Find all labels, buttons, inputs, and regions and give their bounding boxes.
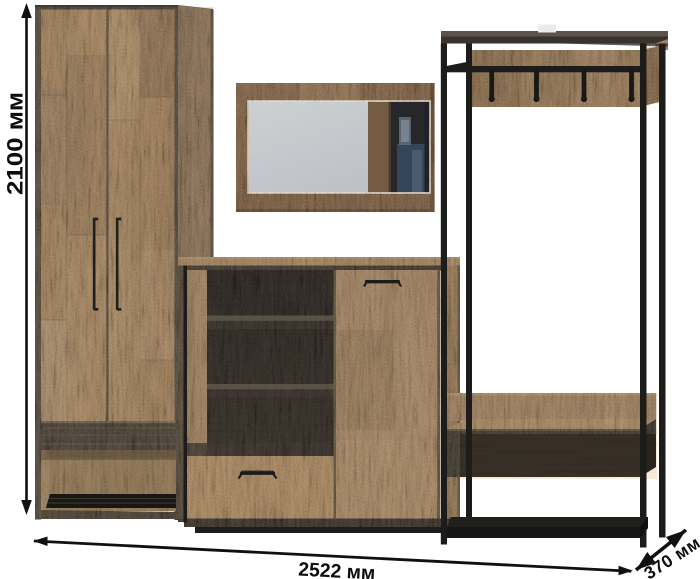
svg-text:2100 мм: 2100 мм xyxy=(3,92,28,195)
svg-text:2522 мм: 2522 мм xyxy=(298,559,376,579)
